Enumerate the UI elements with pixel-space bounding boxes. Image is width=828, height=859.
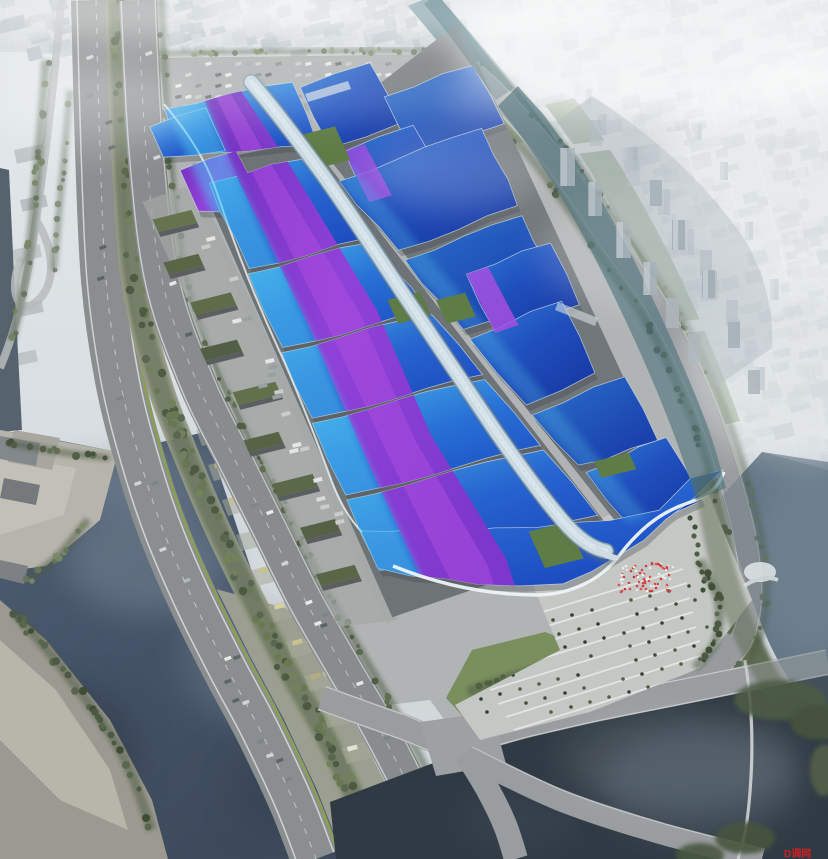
svg-text:D调网: D调网	[784, 847, 811, 859]
